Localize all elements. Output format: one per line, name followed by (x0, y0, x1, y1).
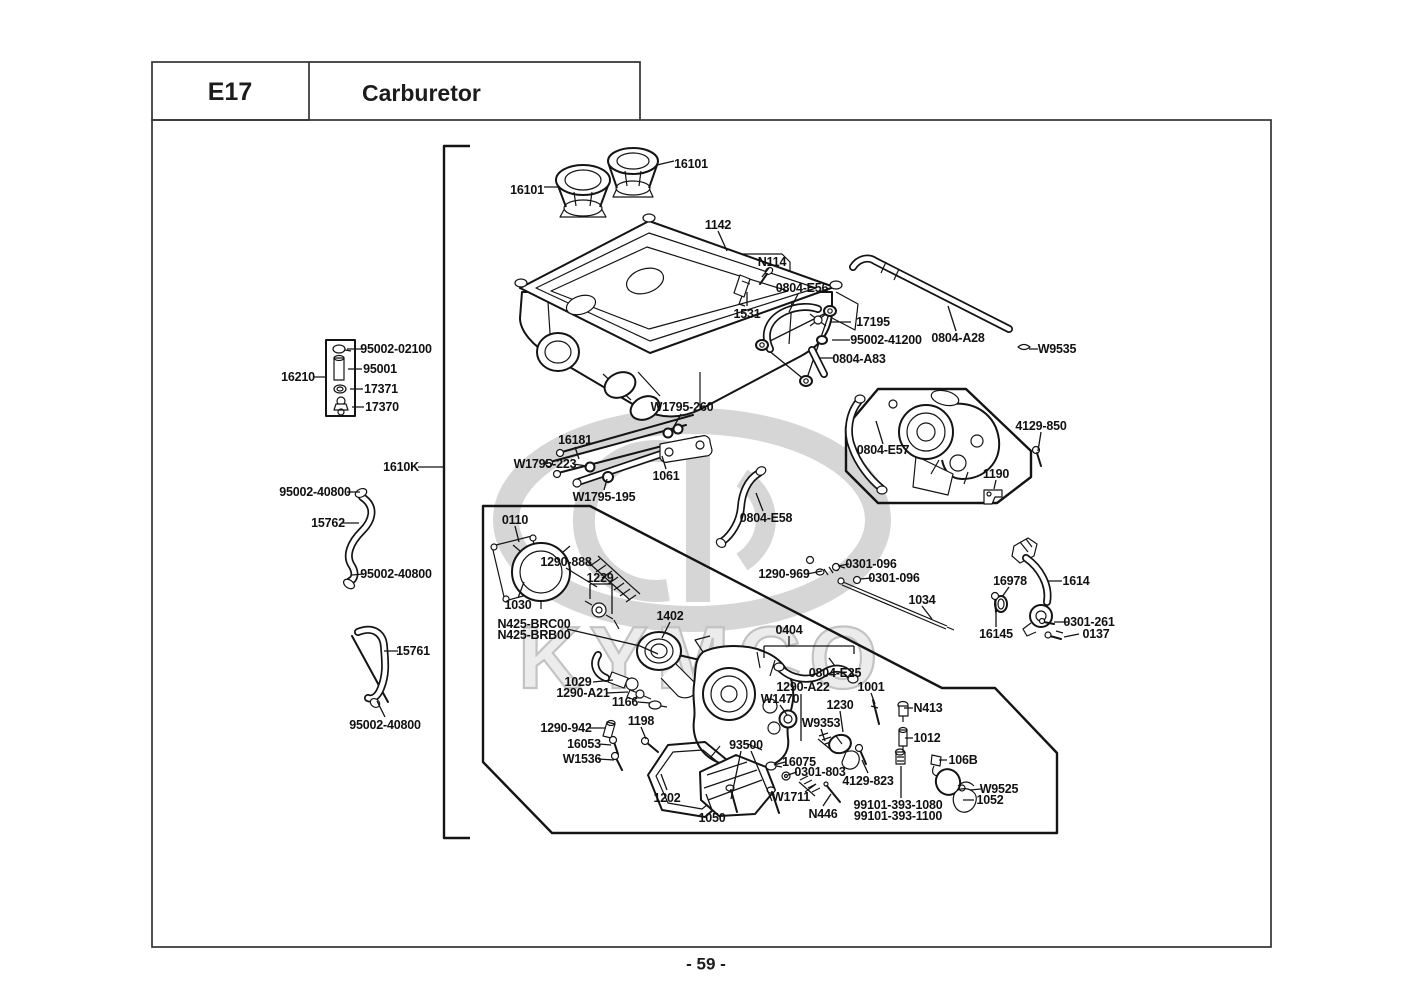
page-code: E17 (208, 78, 252, 106)
part-label-w1711: W1711 (772, 790, 810, 804)
part-label-1531: 1531 (733, 307, 760, 321)
part-label-1290-969: 1290-969 (758, 567, 809, 581)
part-label-0301-096: 0301-096 (845, 557, 896, 571)
part-label-0804-e57: 0804-E57 (857, 443, 910, 457)
part-label-w1795-260: W1795-260 (651, 400, 714, 414)
part-label-1290-942: 1290-942 (540, 721, 591, 735)
part-label-1198: 1198 (628, 714, 655, 728)
part-label-1230: 1230 (826, 698, 853, 712)
part-label-0804-e58: 0804-E58 (740, 511, 793, 525)
part-label-15762: 15762 (311, 516, 345, 530)
part-label-1290-a21: 1290-A21 (556, 686, 610, 700)
part-label-n114: N114 (758, 255, 787, 269)
part-label-95001: 95001 (363, 362, 397, 376)
part-label-w1795-223: W1795-223 (514, 457, 577, 471)
part-label-w1470: W1470 (761, 692, 800, 706)
part-label-1229: 1229 (586, 571, 613, 585)
part-label-17371: 17371 (364, 382, 398, 396)
part-label-99101-393-1100: 99101-393-1100 (854, 809, 943, 823)
part-label-0404: 0404 (775, 623, 802, 637)
part-label-95002-41200: 95002-41200 (850, 333, 922, 347)
carburetor-diagram: E17 Carburetor - 59 - KYMCO (0, 0, 1415, 1000)
part-label-15761: 15761 (396, 644, 430, 658)
part-label-0110: 0110 (502, 513, 529, 527)
part-label-1166: 1166 (612, 695, 639, 709)
part-label-16053: 16053 (567, 737, 601, 751)
part-label-16978: 16978 (993, 574, 1027, 588)
part-label-1061: 1061 (652, 469, 679, 483)
group-bracket (444, 146, 470, 838)
part-label-n413: N413 (913, 701, 942, 715)
part-label-16101: 16101 (674, 157, 708, 171)
airbox-drawing (515, 214, 858, 424)
part-label-95002-40800: 95002-40800 (349, 718, 421, 732)
part-label-w9353: W9353 (802, 716, 841, 730)
part-label-4129-850: 4129-850 (1015, 419, 1066, 433)
parts-catalog-page: E17 Carburetor - 59 - KYMCO (0, 0, 1415, 1000)
funnel-parts (556, 148, 658, 217)
part-label-0301-096: 0301-096 (868, 571, 919, 585)
part-label-0804-e56: 0804-E56 (776, 281, 829, 295)
part-label-16145: 16145 (979, 627, 1013, 641)
part-label-1190: 1190 (983, 467, 1010, 481)
part-label-95002-40800: 95002-40800 (360, 567, 432, 581)
part-label-n446: N446 (808, 807, 837, 821)
part-label-1050: 1050 (698, 811, 725, 825)
part-label-1610k: 1610K (383, 460, 419, 474)
part-label-w9535: W9535 (1038, 342, 1077, 356)
part-label-1142: 1142 (705, 218, 732, 232)
part-label-17370: 17370 (365, 400, 399, 414)
part-label-0804-a28: 0804-A28 (931, 331, 985, 345)
part-label-1614: 1614 (1062, 574, 1089, 588)
part-label-0804-a83: 0804-A83 (832, 352, 886, 366)
part-label-16181: 16181 (558, 433, 592, 447)
part-label-17195: 17195 (856, 315, 890, 329)
page-title: Carburetor (362, 80, 481, 106)
part-label-1001: 1001 (857, 680, 884, 694)
part-label-106b: 106B (948, 753, 977, 767)
part-label-1290-888: 1290-888 (540, 555, 591, 569)
part-label-16210: 16210 (281, 370, 315, 384)
part-label-1030: 1030 (504, 598, 531, 612)
part-label-w1795-195: W1795-195 (573, 490, 636, 504)
drain-hoses (342, 487, 388, 709)
part-label-0301-803: 0301-803 (794, 765, 845, 779)
part-label-16101: 16101 (510, 183, 544, 197)
part-label-1034: 1034 (908, 593, 935, 607)
part-label-95002-02100: 95002-02100 (360, 342, 432, 356)
part-label-w1536: W1536 (563, 752, 602, 766)
sensor-group (992, 538, 1064, 639)
part-label-1402: 1402 (656, 609, 683, 623)
part-label-n425-brb00: N425-BRB00 (497, 628, 570, 642)
part-label-95002-40800: 95002-40800 (279, 485, 351, 499)
page-number: - 59 - (686, 955, 726, 974)
part-label-1052: 1052 (976, 793, 1003, 807)
part-label-93500: 93500 (729, 738, 763, 752)
part-label-1202: 1202 (653, 791, 680, 805)
part-label-0804-e25: 0804-E25 (809, 666, 862, 680)
part-label-0137: 0137 (1082, 627, 1109, 641)
part-label-1012: 1012 (913, 731, 940, 745)
part-label-4129-823: 4129-823 (842, 774, 893, 788)
float-valve-box (326, 340, 355, 416)
